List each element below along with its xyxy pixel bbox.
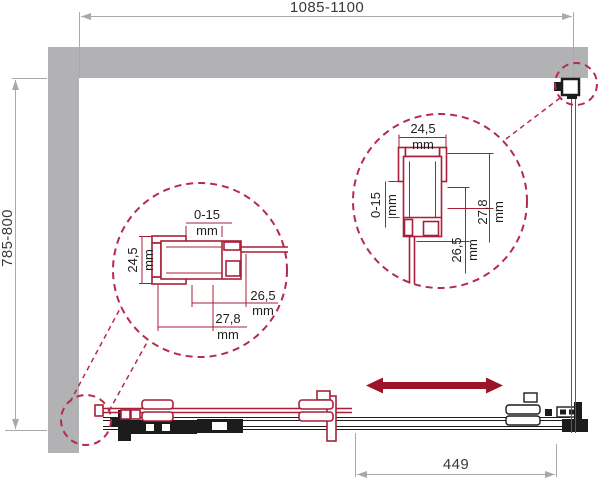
- detail-left-adjustment-label: 0-15: [194, 207, 220, 222]
- mm-unit-label: mm: [217, 327, 239, 342]
- corner-bracket-bottom-right: [557, 402, 588, 432]
- shower-enclosure-plan-drawing: 1085-1100 785-800 449: [0, 0, 600, 479]
- travel-dimension-label: 449: [443, 456, 469, 473]
- wall-top: [48, 47, 588, 78]
- mm-unit-label: mm: [196, 223, 218, 238]
- height-dimension: 785-800: [0, 79, 47, 431]
- detail-right-adjustment-label: 0-15: [368, 192, 383, 218]
- detail-left-inner-depth-label: 26,5: [250, 288, 275, 303]
- mm-unit-label: mm: [252, 303, 274, 318]
- door-travel-dimension: 449: [356, 433, 557, 477]
- roller-left: [121, 400, 173, 421]
- detail-right-inner-depth-label: 26,5: [449, 237, 464, 262]
- side-panel-glass: [572, 95, 576, 433]
- wall-left: [48, 47, 79, 453]
- mm-unit-label: mm: [465, 239, 480, 261]
- mm-unit-label: mm: [384, 194, 399, 216]
- callout-leader-right: [506, 98, 560, 139]
- roller-center: [299, 391, 333, 421]
- width-dimension-label: 1085-1100: [290, 0, 364, 16]
- slide-direction-arrow-icon: [366, 378, 503, 394]
- detail-right-width-label: 24,5: [410, 121, 435, 136]
- detail-left-height-label: 24,5: [125, 247, 140, 272]
- detail-left-outer-depth-label: 27,8: [215, 311, 240, 326]
- mm-unit-label: mm: [491, 201, 506, 223]
- detail-right-outer-depth-label: 27,8: [475, 199, 490, 224]
- mm-unit-label: mm: [141, 249, 156, 271]
- mm-unit-label: mm: [412, 137, 434, 152]
- height-dimension-label: 785-800: [0, 209, 16, 267]
- technical-drawing-page: 1085-1100 785-800 449: [0, 0, 600, 479]
